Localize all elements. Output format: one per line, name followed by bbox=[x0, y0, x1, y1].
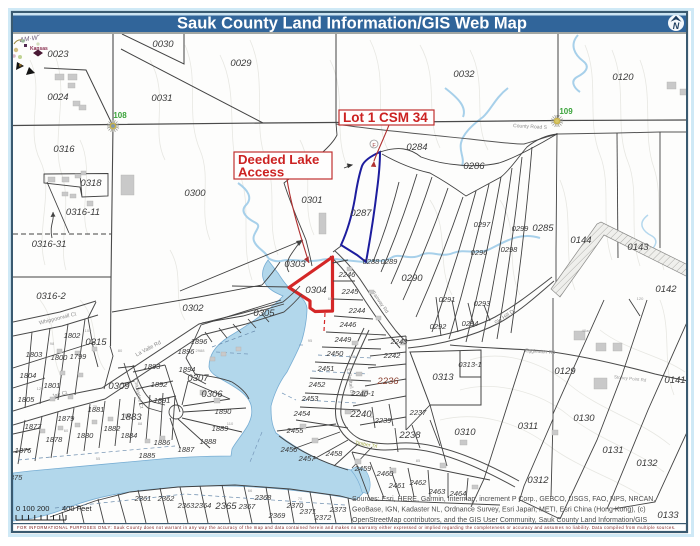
svg-text:0318: 0318 bbox=[80, 178, 102, 189]
svg-text:0030: 0030 bbox=[152, 39, 174, 50]
svg-text:60: 60 bbox=[64, 428, 69, 433]
svg-text:0298: 0298 bbox=[501, 245, 519, 254]
svg-text:2459: 2459 bbox=[354, 464, 373, 473]
svg-text:1805: 1805 bbox=[18, 395, 36, 404]
svg-text:60: 60 bbox=[328, 296, 333, 301]
svg-text:0029: 0029 bbox=[230, 58, 252, 69]
svg-text:1878: 1878 bbox=[46, 435, 64, 444]
svg-text:1884: 1884 bbox=[121, 431, 138, 440]
svg-text:2450: 2450 bbox=[326, 349, 345, 358]
svg-text:GeoBase, IGN, Kadaster NL, Ord: GeoBase, IGN, Kadaster NL, Ordnance Surv… bbox=[352, 507, 646, 514]
svg-text:FOR INFORMATIONAL PURPOSES ONL: FOR INFORMATIONAL PURPOSES ONLY: Sauk Co… bbox=[17, 525, 676, 530]
svg-text:0313: 0313 bbox=[432, 372, 454, 383]
svg-text:2457: 2457 bbox=[298, 454, 317, 463]
svg-text:1887: 1887 bbox=[178, 445, 196, 454]
svg-text:90: 90 bbox=[370, 414, 375, 419]
svg-text:0024: 0024 bbox=[47, 92, 68, 103]
svg-text:0294: 0294 bbox=[462, 319, 479, 328]
svg-text:1804: 1804 bbox=[20, 371, 37, 380]
svg-text:0291: 0291 bbox=[439, 295, 456, 304]
svg-text:1876: 1876 bbox=[15, 446, 33, 455]
svg-text:2237: 2237 bbox=[409, 408, 428, 417]
svg-text:105: 105 bbox=[85, 328, 92, 333]
svg-text:1896: 1896 bbox=[178, 347, 196, 356]
svg-text:2462: 2462 bbox=[409, 478, 428, 487]
svg-text:2242: 2242 bbox=[383, 351, 402, 360]
svg-text:1802: 1802 bbox=[64, 331, 82, 340]
svg-text:0293: 0293 bbox=[474, 299, 492, 308]
svg-text:0313-1: 0313-1 bbox=[458, 360, 481, 369]
svg-text:0301: 0301 bbox=[301, 195, 322, 206]
svg-text:2460: 2460 bbox=[376, 469, 395, 478]
svg-text:1879: 1879 bbox=[58, 414, 76, 423]
svg-text:0310: 0310 bbox=[454, 427, 476, 438]
svg-text:1885: 1885 bbox=[139, 451, 157, 460]
svg-text:2246: 2246 bbox=[338, 270, 357, 279]
svg-text:0316-31: 0316-31 bbox=[32, 239, 67, 250]
svg-text:2238: 2238 bbox=[398, 430, 421, 441]
svg-text:0130: 0130 bbox=[573, 413, 595, 424]
svg-text:2363: 2363 bbox=[177, 501, 196, 510]
svg-text:0300: 0300 bbox=[184, 188, 206, 199]
svg-text:0133: 0133 bbox=[657, 510, 679, 521]
svg-text:1888: 1888 bbox=[200, 437, 218, 446]
svg-text:0285: 0285 bbox=[532, 223, 554, 234]
svg-text:66: 66 bbox=[248, 488, 253, 493]
svg-text:2365: 2365 bbox=[214, 501, 237, 512]
svg-text:Lot 1 CSM 34: Lot 1 CSM 34 bbox=[343, 110, 428, 125]
svg-text:0023: 0023 bbox=[47, 49, 69, 60]
svg-text:0302: 0302 bbox=[182, 303, 204, 314]
svg-text:2239: 2239 bbox=[374, 416, 393, 425]
svg-text:2361: 2361 bbox=[134, 494, 152, 503]
svg-text:2455: 2455 bbox=[286, 426, 305, 435]
svg-text:55: 55 bbox=[96, 456, 101, 461]
svg-text:75: 75 bbox=[93, 404, 98, 409]
svg-text:2367: 2367 bbox=[238, 502, 257, 511]
svg-text:0304: 0304 bbox=[305, 285, 326, 296]
svg-text:2446: 2446 bbox=[339, 320, 358, 329]
svg-text:OpenStreetMap contributors, an: OpenStreetMap contributors, and the GIS … bbox=[352, 517, 648, 524]
svg-text:70: 70 bbox=[298, 496, 303, 501]
svg-text:1801: 1801 bbox=[44, 381, 61, 390]
svg-text:1799: 1799 bbox=[70, 352, 88, 361]
svg-text:2240-1: 2240-1 bbox=[350, 389, 374, 398]
svg-text:80: 80 bbox=[118, 348, 123, 353]
svg-text:2452: 2452 bbox=[308, 380, 327, 389]
svg-text:0144: 0144 bbox=[570, 235, 591, 246]
svg-text:0284: 0284 bbox=[406, 142, 427, 153]
svg-text:2454: 2454 bbox=[293, 409, 311, 418]
svg-text:Sauk County Land Information/G: Sauk County Land Information/GIS Web Map bbox=[177, 15, 527, 33]
svg-text:0312: 0312 bbox=[527, 475, 549, 486]
svg-text:2458: 2458 bbox=[325, 449, 344, 458]
svg-text:Access: Access bbox=[238, 165, 284, 180]
svg-text:2244: 2244 bbox=[348, 306, 366, 315]
svg-text:2463: 2463 bbox=[428, 487, 447, 496]
svg-text:2456: 2456 bbox=[280, 445, 299, 454]
svg-text:N: N bbox=[673, 21, 680, 31]
svg-text:0299: 0299 bbox=[512, 224, 530, 233]
svg-text:0131: 0131 bbox=[602, 445, 623, 456]
svg-text:0316: 0316 bbox=[53, 144, 75, 155]
svg-text:0129: 0129 bbox=[554, 366, 576, 377]
svg-text:0032: 0032 bbox=[453, 69, 475, 80]
svg-text:0 100 200: 0 100 200 bbox=[16, 504, 49, 513]
svg-text:1896: 1896 bbox=[191, 337, 209, 346]
svg-text:2243: 2243 bbox=[390, 337, 409, 346]
svg-text:0286: 0286 bbox=[463, 161, 485, 172]
svg-text:95: 95 bbox=[308, 338, 313, 343]
svg-text:1893: 1893 bbox=[144, 362, 162, 371]
svg-text:120: 120 bbox=[37, 386, 44, 391]
svg-text:0132: 0132 bbox=[636, 458, 658, 469]
svg-text:2372: 2372 bbox=[314, 513, 333, 522]
svg-text:102: 102 bbox=[349, 354, 356, 359]
svg-text:1877: 1877 bbox=[25, 422, 43, 431]
svg-text:0305: 0305 bbox=[253, 308, 275, 319]
svg-text:98: 98 bbox=[50, 341, 55, 346]
svg-text:1892: 1892 bbox=[151, 380, 169, 389]
svg-text:2449: 2449 bbox=[334, 335, 353, 344]
svg-text:1800: 1800 bbox=[51, 353, 69, 362]
svg-text:1890: 1890 bbox=[215, 407, 233, 416]
svg-text:1882: 1882 bbox=[104, 424, 122, 433]
svg-text:1886: 1886 bbox=[154, 438, 172, 447]
svg-text:0296: 0296 bbox=[471, 248, 489, 257]
svg-text:0290: 0290 bbox=[401, 273, 423, 284]
svg-text:0288: 0288 bbox=[363, 257, 381, 266]
svg-text:0142: 0142 bbox=[655, 284, 677, 295]
svg-text:2451: 2451 bbox=[317, 364, 335, 373]
svg-text:0120: 0120 bbox=[612, 72, 634, 83]
svg-text:2364: 2364 bbox=[194, 501, 212, 510]
svg-text:1880: 1880 bbox=[77, 431, 95, 440]
svg-text:2368: 2368 bbox=[254, 493, 273, 502]
svg-text:2461: 2461 bbox=[388, 481, 406, 490]
svg-text:120: 120 bbox=[637, 296, 644, 301]
svg-text:2369: 2369 bbox=[268, 511, 287, 520]
svg-text:0031: 0031 bbox=[151, 93, 172, 104]
svg-text:0292: 0292 bbox=[430, 322, 448, 331]
svg-text:0306: 0306 bbox=[201, 389, 223, 400]
svg-text:0315: 0315 bbox=[85, 337, 107, 348]
svg-text:1891: 1891 bbox=[154, 396, 171, 405]
svg-text:2236: 2236 bbox=[376, 376, 399, 387]
svg-text:400 Feet: 400 Feet bbox=[62, 504, 93, 513]
svg-text:1803: 1803 bbox=[26, 350, 44, 359]
svg-text:40ac: 40ac bbox=[582, 328, 591, 333]
svg-text:Sources: Esri, HERE, Garmin, I: Sources: Esri, HERE, Garmin, Intermap, i… bbox=[352, 496, 655, 503]
svg-text:109: 109 bbox=[559, 107, 573, 116]
svg-text:0303: 0303 bbox=[284, 259, 306, 270]
svg-text:85: 85 bbox=[416, 458, 421, 463]
svg-text:1894: 1894 bbox=[179, 365, 196, 374]
svg-text:88: 88 bbox=[138, 421, 143, 426]
svg-text:0316-2: 0316-2 bbox=[36, 291, 66, 302]
svg-text:0289: 0289 bbox=[381, 257, 399, 266]
svg-text:0297: 0297 bbox=[474, 220, 492, 229]
svg-text:108: 108 bbox=[113, 111, 127, 120]
svg-text:2362: 2362 bbox=[157, 494, 176, 503]
svg-text:0311: 0311 bbox=[518, 421, 538, 432]
svg-text:110: 110 bbox=[227, 421, 234, 426]
svg-text:2245: 2245 bbox=[341, 287, 360, 296]
svg-text:0141: 0141 bbox=[664, 375, 685, 386]
svg-text:0287: 0287 bbox=[350, 208, 372, 219]
svg-text:0307: 0307 bbox=[187, 373, 209, 384]
svg-text:0316-11: 0316-11 bbox=[66, 207, 100, 218]
svg-text:2453: 2453 bbox=[301, 394, 320, 403]
svg-text:2988: 2988 bbox=[196, 348, 206, 353]
svg-text:0309: 0309 bbox=[108, 381, 130, 392]
svg-text:2373: 2373 bbox=[329, 505, 348, 514]
svg-text:0143: 0143 bbox=[627, 242, 649, 253]
